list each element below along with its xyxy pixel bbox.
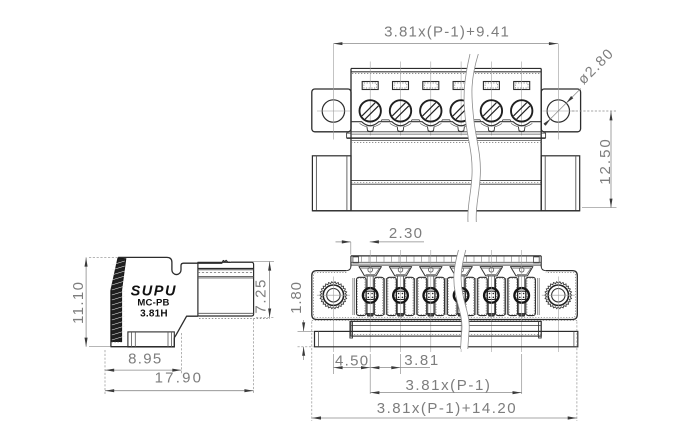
svg-text:3.81x(P-1)+14.20: 3.81x(P-1)+14.20 — [377, 400, 517, 417]
svg-text:7.25: 7.25 — [252, 278, 269, 314]
svg-text:3.81H: 3.81H — [140, 308, 168, 319]
svg-text:2.30: 2.30 — [389, 225, 423, 242]
svg-text:17.90: 17.90 — [155, 370, 204, 387]
svg-text:12.50: 12.50 — [597, 137, 614, 185]
svg-text:3.81x(P-1): 3.81x(P-1) — [405, 377, 491, 394]
svg-text:8.95: 8.95 — [128, 351, 162, 368]
svg-text:1.80: 1.80 — [288, 281, 305, 314]
svg-text:3.81x(P-1)+9.41: 3.81x(P-1)+9.41 — [384, 24, 510, 41]
svg-text:3.81: 3.81 — [404, 352, 440, 369]
svg-text:11.10: 11.10 — [70, 281, 87, 324]
svg-text:MC-PB: MC-PB — [137, 298, 169, 309]
